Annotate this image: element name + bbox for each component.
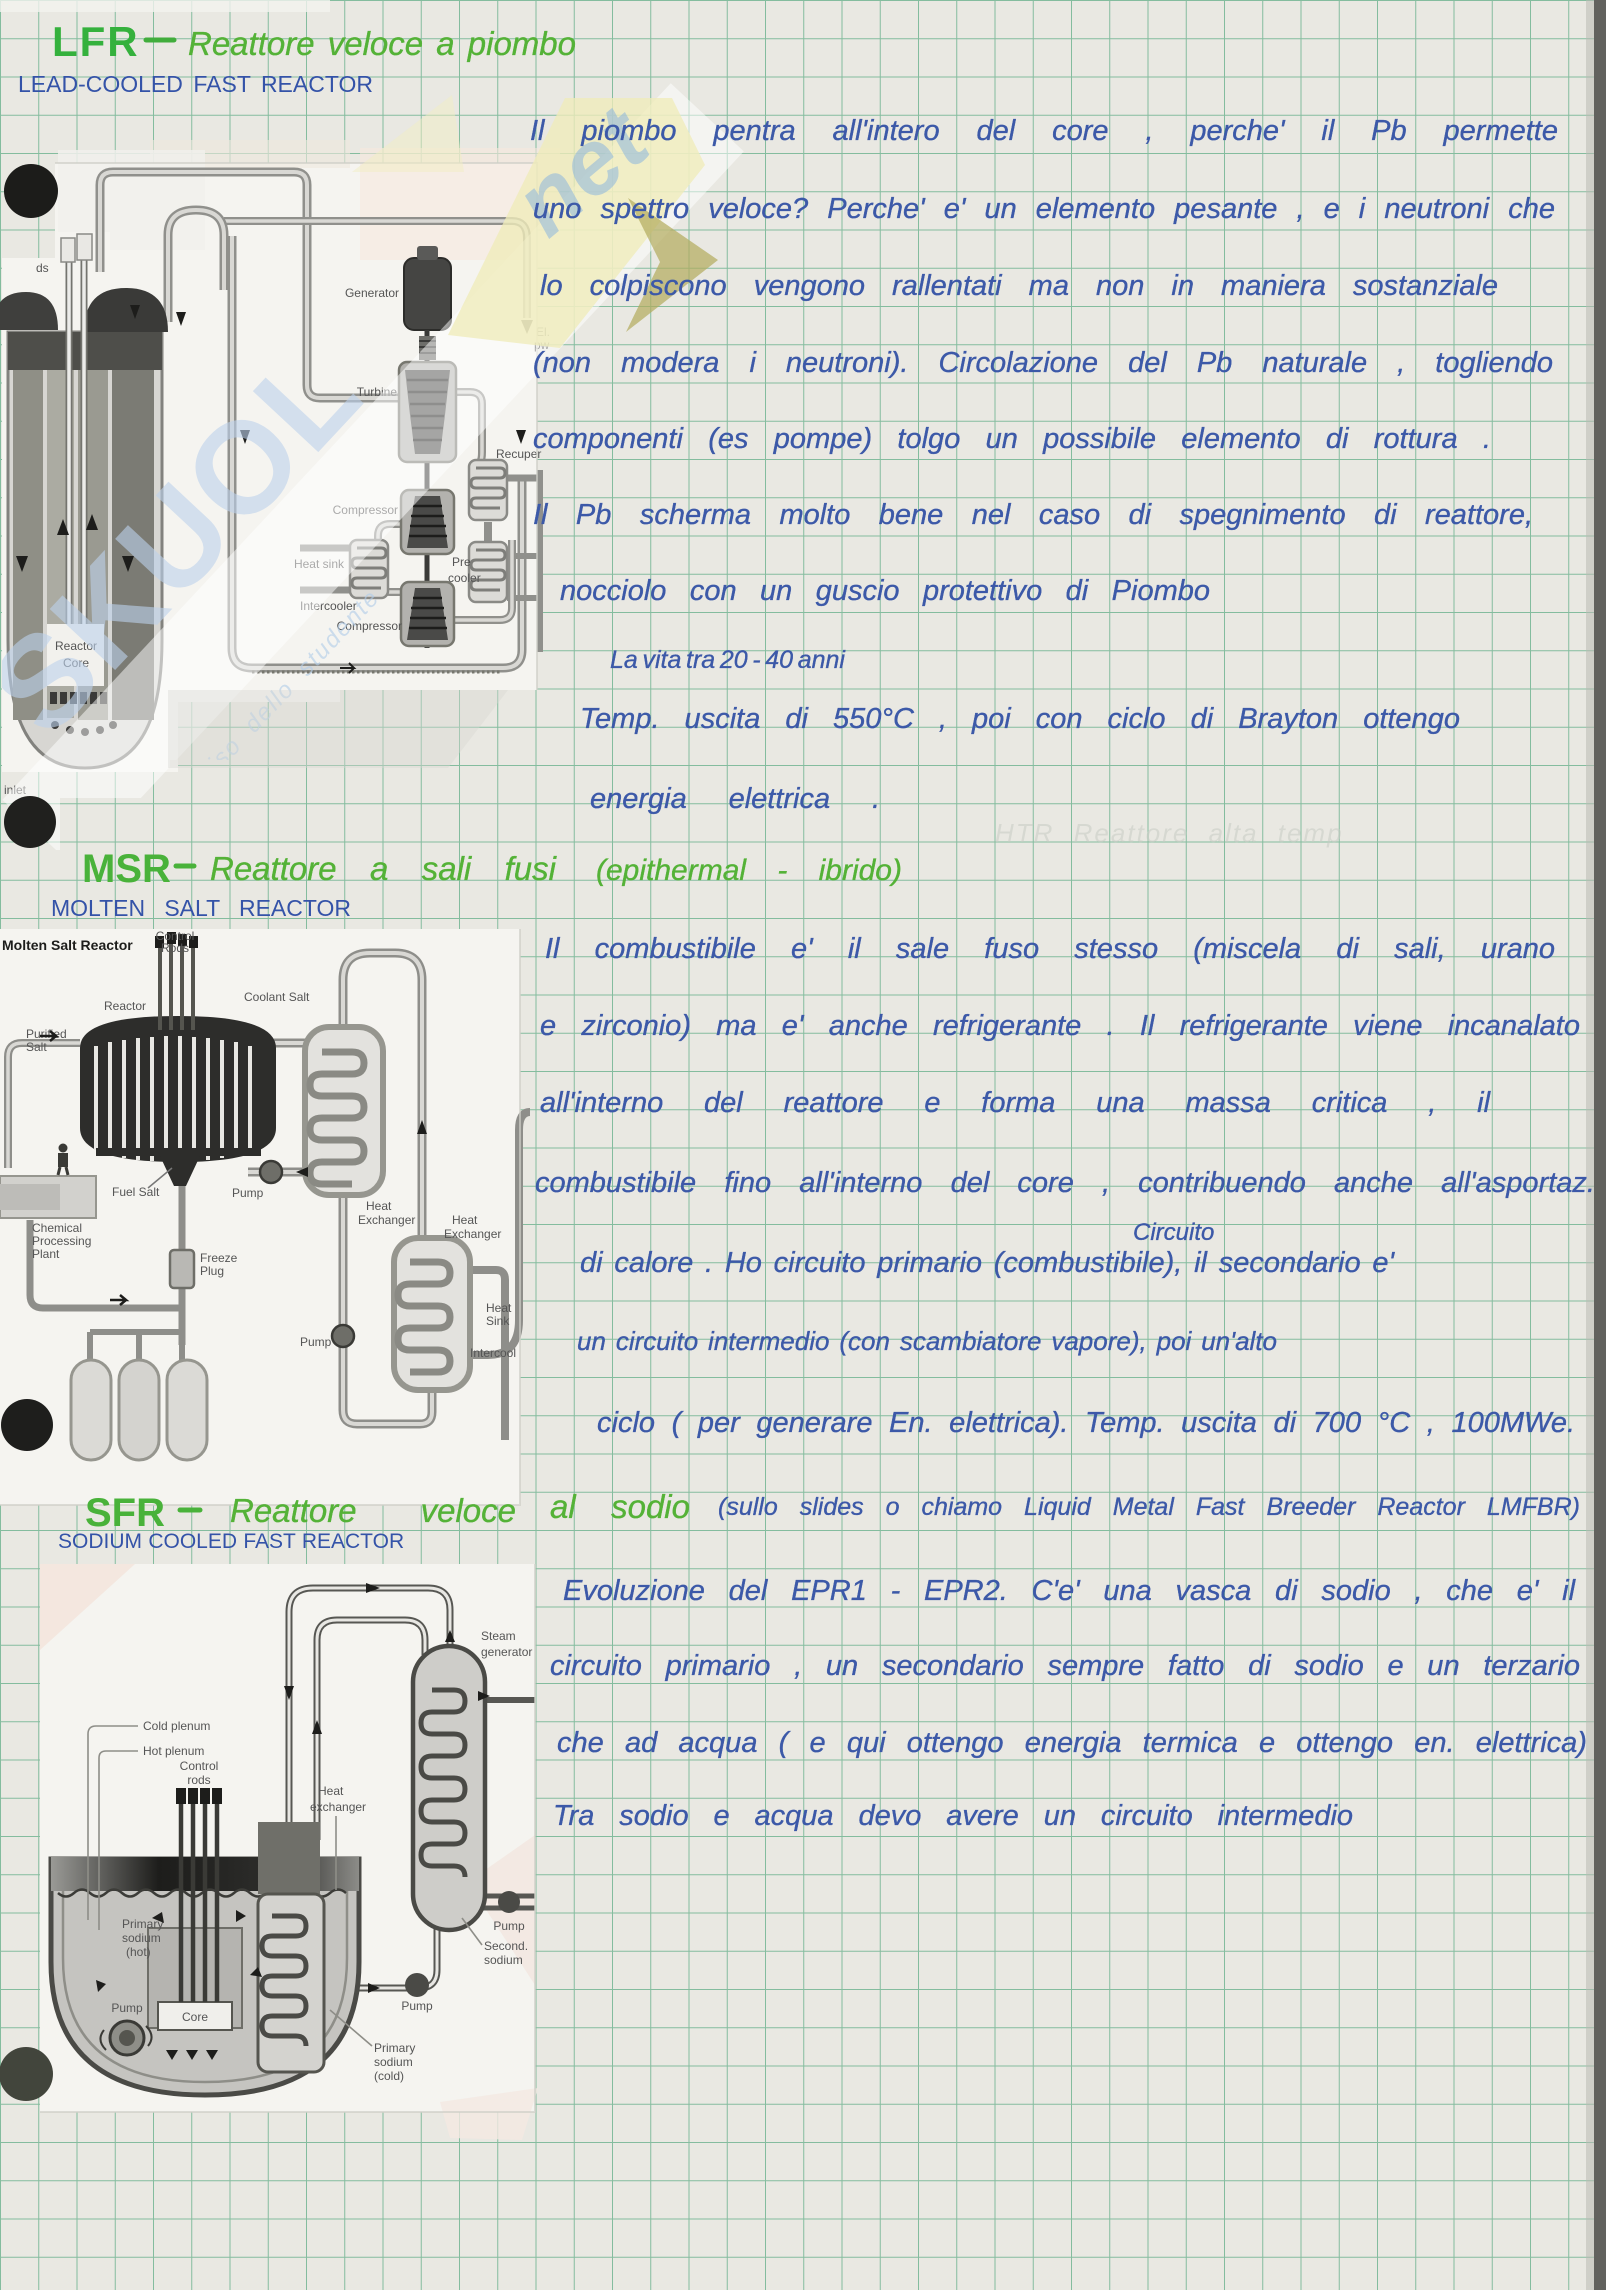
svg-text:Fuel Salt: Fuel Salt (112, 1185, 160, 1199)
svg-text:Coolant Salt: Coolant Salt (244, 990, 310, 1004)
svg-text:ds: ds (36, 261, 49, 275)
svg-text:Il piombo pentra all'intero: Il piombo pentra all'intero del core , p… (530, 115, 1558, 147)
svg-text:Salt: Salt (26, 1040, 47, 1054)
svg-text:un circuito intermedio (con sc: un circuito intermedio (con scambiatore … (577, 1326, 1277, 1356)
svg-text:Plant: Plant (32, 1247, 60, 1261)
svg-text:Cold plenum: Cold plenum (143, 1719, 210, 1733)
svg-text:Control: Control (180, 1759, 219, 1773)
svg-text:sodium: sodium (484, 1953, 523, 1967)
svg-text:(non modera i neutroni). C: (non modera i neutroni). Circolazione de… (533, 347, 1553, 379)
svg-text:Plug: Plug (200, 1264, 224, 1278)
svg-text:Intercool: Intercool (470, 1346, 516, 1360)
svg-text:ciclo ( per generare En. e: ciclo ( per generare En. elettrica). Tem… (597, 1407, 1575, 1439)
svg-text:Rods: Rods (161, 941, 189, 955)
svg-text:sodium: sodium (122, 1931, 161, 1945)
svg-text:Processing: Processing (32, 1234, 91, 1248)
svg-text:Pre: Pre (452, 555, 471, 569)
svg-text:Pump: Pump (493, 1919, 525, 1933)
svg-text:uno spettro veloce? Perche': uno spettro veloce? Perche' e' un elemen… (533, 193, 1555, 225)
svg-text:(hot): (hot) (126, 1945, 151, 1959)
svg-text:Il Pb scherma molto bene: Il Pb scherma molto bene nel caso di spe… (533, 499, 1533, 531)
svg-text:di calore . Ho circuito pr: di calore . Ho circuito primario (combus… (580, 1247, 1395, 1279)
svg-text:MSR: MSR (82, 847, 171, 891)
svg-text:Reactor: Reactor (104, 999, 146, 1013)
svg-text:SFR: SFR (85, 1491, 165, 1535)
svg-text:LFR: LFR (52, 18, 140, 65)
svg-text:Heat: Heat (486, 1301, 512, 1315)
svg-text:Reattore veloce a piombo: Reattore veloce a piombo (188, 25, 576, 62)
svg-text:Hot plenum: Hot plenum (143, 1744, 204, 1758)
svg-text:cooler: cooler (448, 571, 481, 585)
svg-text:Exchanger: Exchanger (444, 1227, 501, 1241)
svg-text:nocciolo con un guscio pro: nocciolo con un guscio protettivo di Pio… (560, 575, 1210, 607)
svg-text:Heat: Heat (318, 1784, 344, 1798)
svg-text:Steam: Steam (481, 1629, 516, 1643)
svg-text:generator: generator (481, 1645, 532, 1659)
svg-text:al sodio: al sodio (550, 1488, 690, 1525)
svg-text:Tra sodio e acqua devo: Tra sodio e acqua devo avere un circuito… (553, 1800, 1353, 1832)
svg-text:Pump: Pump (111, 2001, 143, 2015)
svg-text:Purified: Purified (26, 1027, 67, 1041)
svg-text:all'interno del reattore e: all'interno del reattore e forma una mas… (540, 1087, 1492, 1119)
svg-text:e zirconio) ma e' anche re: e zirconio) ma e' anche refrigerante . I… (540, 1010, 1580, 1042)
svg-text:Pump: Pump (401, 1999, 433, 2013)
svg-text:circuito primario , un seco: circuito primario , un secondario sempre… (550, 1650, 1580, 1682)
svg-text:Sink: Sink (486, 1314, 510, 1328)
svg-text:sodium: sodium (374, 2055, 413, 2069)
svg-text:Circuito: Circuito (1133, 1219, 1214, 1246)
svg-text:Heat: Heat (366, 1199, 392, 1213)
svg-text:Evoluzione del EPR1 - EPR2.: Evoluzione del EPR1 - EPR2. C'e' una vas… (563, 1575, 1577, 1607)
svg-text:SODIUM COOLED FAST REACTOR: SODIUM COOLED FAST REACTOR (58, 1530, 404, 1553)
svg-text:Il combustibile e' il sale: Il combustibile e' il sale fuso stesso (… (545, 933, 1555, 965)
svg-text:LEAD-COOLED FAST REACTOR: LEAD-COOLED FAST REACTOR (18, 71, 373, 97)
svg-text:Exchanger: Exchanger (358, 1213, 415, 1227)
svg-text:(sullo slides o chiamo Liq: (sullo slides o chiamo Liquid Metal Fast… (718, 1493, 1580, 1521)
svg-text:Generator: Generator (345, 286, 399, 300)
svg-text:che ad acqua ( e qui otte: che ad acqua ( e qui ottengo energia ter… (557, 1727, 1587, 1759)
svg-text:(cold): (cold) (374, 2069, 404, 2083)
svg-text:Reattore a sali fusi: Reattore a sali fusi (210, 850, 558, 887)
svg-text:Pump: Pump (232, 1186, 264, 1200)
svg-text:componenti (es pompe) tolgo: componenti (es pompe) tolgo un possibile… (533, 423, 1491, 455)
svg-text:(epithermal - ibrido): (epithermal - ibrido) (596, 854, 902, 887)
svg-text:HTR Reattore alta temp: HTR Reattore alta temp (995, 818, 1344, 848)
svg-text:Heat: Heat (452, 1213, 478, 1227)
svg-text:Core: Core (182, 2010, 208, 2024)
svg-text:Pump: Pump (300, 1335, 332, 1349)
svg-text:Reattore veloce: Reattore veloce (230, 1492, 516, 1529)
svg-text:MOLTEN SALT REACTOR: MOLTEN SALT REACTOR (51, 895, 351, 921)
svg-text:Second.: Second. (484, 1939, 528, 1953)
svg-text:Temp. uscita di 550°C , p: Temp. uscita di 550°C , poi con ciclo di… (580, 703, 1460, 735)
svg-text:Primary: Primary (374, 2041, 415, 2055)
svg-text:La vita tra 20 - 40 anni: La vita tra 20 - 40 anni (610, 646, 846, 674)
svg-text:Chemical: Chemical (32, 1221, 82, 1235)
svg-text:combustibile fino all'intern: combustibile fino all'interno del core ,… (535, 1167, 1595, 1199)
svg-text:rods: rods (187, 1773, 210, 1787)
svg-text:exchanger: exchanger (310, 1800, 366, 1814)
svg-text:energia elettrica .: energia elettrica . (590, 783, 880, 815)
svg-text:Freeze: Freeze (200, 1251, 238, 1265)
svg-text:Molten Salt Reactor: Molten Salt Reactor (2, 937, 133, 953)
svg-text:lo colpiscono vengono ralle: lo colpiscono vengono rallentati ma non … (540, 270, 1498, 302)
